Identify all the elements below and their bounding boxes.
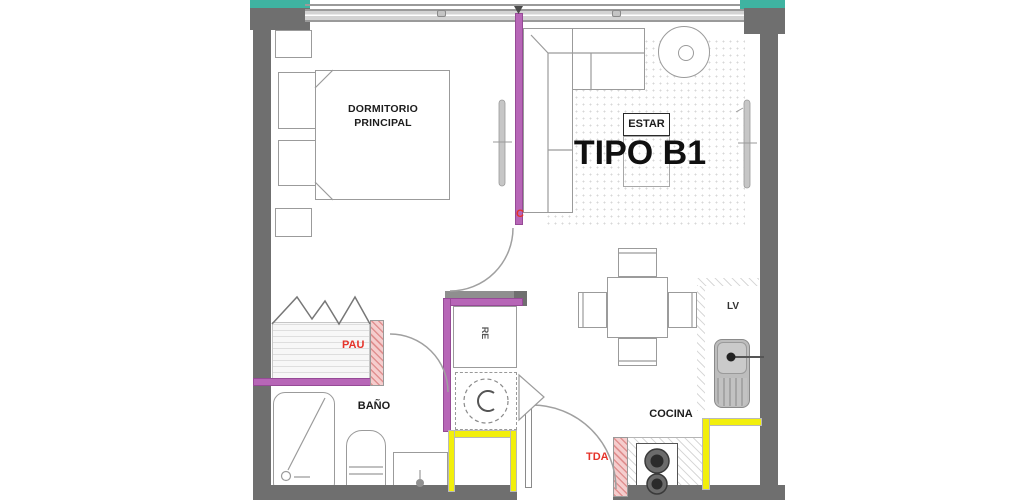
window-leaf-right xyxy=(744,100,750,188)
bedroom-door-arc xyxy=(450,228,513,291)
floorplan-canvas: DORMITORIO PRINCIPAL ESTAR TIPO B1 BAÑO … xyxy=(0,0,1024,500)
stove-burners xyxy=(645,449,669,494)
pau-label: PAU xyxy=(342,339,364,351)
furniture-lines xyxy=(282,35,693,481)
vanity-drain xyxy=(416,479,424,487)
bathroom-door-arc xyxy=(390,334,448,392)
tub-drain xyxy=(282,472,291,481)
laundry-label: LV xyxy=(720,301,746,312)
plan-linework xyxy=(0,0,1024,500)
bed-fold-lines xyxy=(315,70,333,200)
toilet-lines xyxy=(349,467,383,474)
bathroom-label: BAÑO xyxy=(348,400,400,412)
tub-lines xyxy=(288,398,325,477)
c-mark-label: C xyxy=(516,208,524,220)
bedroom-label-line1: DORMITORIO xyxy=(328,103,438,117)
window-arrow-marker xyxy=(514,6,523,14)
hall-wedge-door xyxy=(519,375,544,420)
entrance-door-arc xyxy=(532,405,616,489)
window-leaf-left xyxy=(499,100,505,186)
kitchen-faucet xyxy=(727,353,765,362)
living-label-box: ESTAR xyxy=(623,113,670,136)
tda-label: TDA xyxy=(586,451,609,463)
bedroom-label-line2: PRINCIPAL xyxy=(328,117,438,131)
bedroom-label: DORMITORIO PRINCIPAL xyxy=(328,103,438,130)
plan-title: TIPO B1 xyxy=(555,134,725,173)
chair-backrests xyxy=(583,253,692,361)
fridge-label: RE xyxy=(480,324,490,342)
door-arcs xyxy=(390,228,616,489)
closet-zigzag xyxy=(272,297,370,324)
kitchen-label: COCINA xyxy=(643,408,699,420)
washer-symbol xyxy=(464,379,508,423)
living-label: ESTAR xyxy=(628,118,664,130)
